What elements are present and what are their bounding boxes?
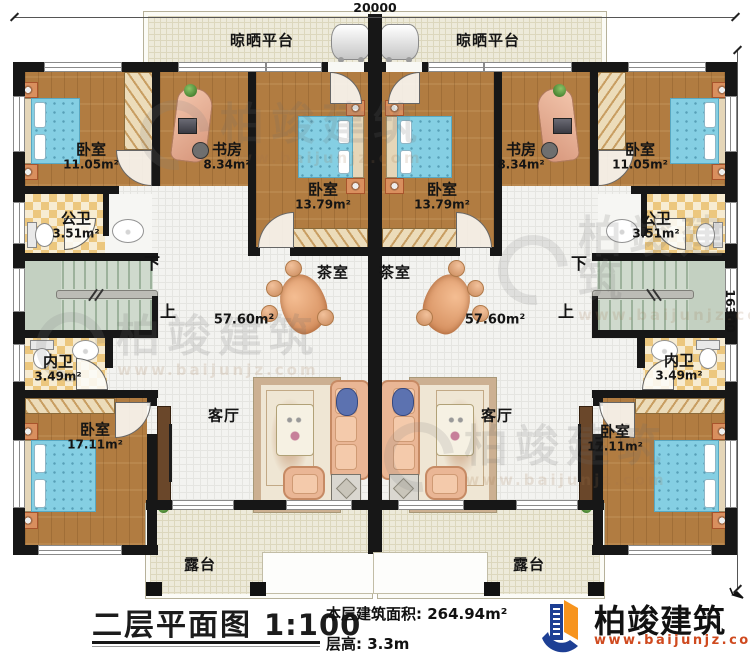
- room-area: 17.11m²: [67, 439, 123, 453]
- label-tea-left: 茶室: [317, 264, 349, 281]
- window: [398, 500, 464, 510]
- label-hall-area-left: 57.60m²: [214, 314, 274, 329]
- wall: [368, 510, 382, 554]
- wall: [592, 390, 737, 398]
- brand-url: www.baijunjz.com: [594, 633, 750, 648]
- room-area: 11.05m²: [63, 159, 119, 173]
- room-name: 书房: [497, 141, 544, 158]
- side-table-top: [393, 478, 414, 499]
- room-name: 公卫: [52, 210, 99, 227]
- label-bedroom-mid-left: 卧室 13.79m²: [295, 181, 351, 212]
- window: [428, 62, 484, 72]
- toilet-bowl: [696, 223, 715, 247]
- bed-pillow: [704, 444, 716, 473]
- label-bedroom-mid-right: 卧室 13.79m²: [414, 181, 470, 212]
- armchair-cushion: [432, 474, 458, 494]
- room-name: 卧室: [63, 141, 119, 158]
- dimension-top-label: 20000: [353, 1, 397, 15]
- armchair: [425, 466, 467, 500]
- room-name: 卧室: [587, 423, 643, 440]
- wall: [382, 247, 460, 256]
- tea-stool: [467, 280, 484, 297]
- room-area: 13.79m²: [414, 199, 470, 213]
- label-bath-public-left: 公卫 3.51m²: [52, 210, 99, 241]
- bed: [672, 98, 730, 162]
- terrace-column: [484, 582, 500, 596]
- floor-height-text: 层高: 3.3m: [326, 633, 409, 654]
- room-area: 3.51m²: [632, 228, 679, 242]
- wall: [368, 14, 382, 510]
- room-area: 8.34m²: [497, 159, 544, 173]
- water-tank: [379, 24, 419, 60]
- terrace-roof-outline: [373, 552, 488, 594]
- room-name: 公卫: [632, 210, 679, 227]
- plan-title: 二层平面图1:100: [92, 600, 361, 644]
- stair-rail: [592, 290, 694, 299]
- window: [628, 545, 712, 555]
- room-name: 内卫: [34, 353, 81, 370]
- bed: [386, 116, 450, 176]
- plan-title-text: 二层平面图: [92, 608, 252, 643]
- nightstand: [385, 178, 404, 194]
- wall: [590, 500, 604, 510]
- room-area: 17.11m²: [587, 441, 643, 455]
- window: [725, 344, 737, 382]
- room-name: 卧室: [414, 181, 470, 198]
- stair-flight: [597, 300, 688, 333]
- window: [725, 440, 737, 508]
- window: [628, 62, 706, 72]
- bed-pillow: [704, 102, 716, 128]
- toilet: [697, 220, 723, 248]
- bed: [656, 440, 730, 510]
- wall: [592, 253, 737, 261]
- room-area: 8.34m²: [203, 159, 250, 173]
- dimension-right-label: 16300: [723, 289, 737, 333]
- wall: [490, 247, 502, 256]
- room-area: 3.51m²: [52, 228, 99, 242]
- label-platform-left: 晾晒平台: [230, 32, 294, 49]
- label-bath-public-right: 公卫 3.51m²: [632, 210, 679, 241]
- plant: [553, 84, 566, 97]
- top-dimension-line: [14, 17, 736, 18]
- wall: [637, 330, 645, 368]
- wall: [590, 62, 598, 186]
- label-living-left: 客厅: [208, 407, 240, 424]
- door-opening: [386, 62, 422, 72]
- title-underline: [92, 641, 320, 644]
- bed-pillow: [400, 150, 412, 174]
- label-bedroom-bottom-right: 卧室 17.11m²: [587, 423, 643, 454]
- label-bath-inner-left: 内卫 3.49m²: [34, 353, 81, 384]
- label-stairs-up-left: 上: [160, 303, 176, 321]
- window: [725, 96, 737, 152]
- label-terrace-right: 露台: [513, 556, 545, 573]
- wardrobe: [596, 72, 626, 150]
- side-table: [389, 474, 419, 502]
- label-stairs-up-right: 上: [558, 303, 574, 321]
- bed-pillow: [704, 134, 716, 160]
- window: [516, 500, 578, 510]
- room-area: 3.49m²: [34, 371, 81, 385]
- label-study-right: 书房 8.34m²: [497, 141, 544, 172]
- bed-pillow: [704, 479, 716, 508]
- label-hall-area-right: 57.60m²: [465, 314, 525, 329]
- mouse-cursor: [729, 586, 745, 602]
- tv: [578, 424, 581, 482]
- label-stairs-down-left: 下: [144, 255, 160, 273]
- tea-stool: [416, 309, 433, 326]
- room-name: 卧室: [67, 421, 123, 438]
- computer-monitor: [553, 118, 572, 134]
- sofa-cushion: [393, 444, 415, 470]
- room-name: 卧室: [612, 141, 668, 158]
- unit-right: [0, 0, 750, 658]
- label-terrace-left: 露台: [184, 556, 216, 573]
- room-name: 卧室: [295, 181, 351, 198]
- label-tea-right: 茶室: [379, 264, 411, 281]
- room-name: 内卫: [655, 352, 702, 369]
- label-platform-right: 晾晒平台: [456, 32, 520, 49]
- room-area: 3.49m²: [655, 370, 702, 384]
- wall: [592, 296, 598, 333]
- room-name: 书房: [203, 141, 250, 158]
- label-bath-inner-right: 内卫 3.49m²: [655, 352, 702, 383]
- room-area: 11.05m²: [612, 159, 668, 173]
- wardrobe: [382, 228, 458, 249]
- label-bedroom-top-right: 卧室 11.05m²: [612, 141, 668, 172]
- label-stairs-down-right: 下: [571, 255, 587, 273]
- brand-logo-icon: [534, 594, 592, 656]
- label-study-left: 书房 8.34m²: [203, 141, 250, 172]
- room-area: 13.79m²: [295, 199, 351, 213]
- stair-landing: [689, 253, 725, 333]
- label-bedroom-top-left: 卧室 11.05m²: [63, 141, 119, 172]
- wardrobe: [635, 398, 725, 414]
- logo-building-orange: [564, 600, 578, 640]
- label-bedroom-bottom-left: 卧室 17.11m²: [67, 421, 123, 452]
- tea-stool: [448, 260, 465, 277]
- person-figure: [392, 388, 414, 416]
- window: [484, 62, 572, 72]
- window: [725, 202, 737, 244]
- sofa-cushion: [393, 416, 415, 442]
- floor-area-text: 本层建筑面积: 264.94m²: [326, 603, 507, 624]
- coffee-table: [436, 404, 474, 456]
- wall: [631, 186, 737, 194]
- floor-plan-page: 柏竣建筑 www.baijunjz.com 柏竣建筑 www.baijunjz.…: [0, 0, 750, 658]
- title-underline-thin: [92, 646, 320, 647]
- wall: [592, 330, 737, 338]
- bed-pillow: [400, 120, 412, 144]
- label-living-right: 客厅: [481, 407, 513, 424]
